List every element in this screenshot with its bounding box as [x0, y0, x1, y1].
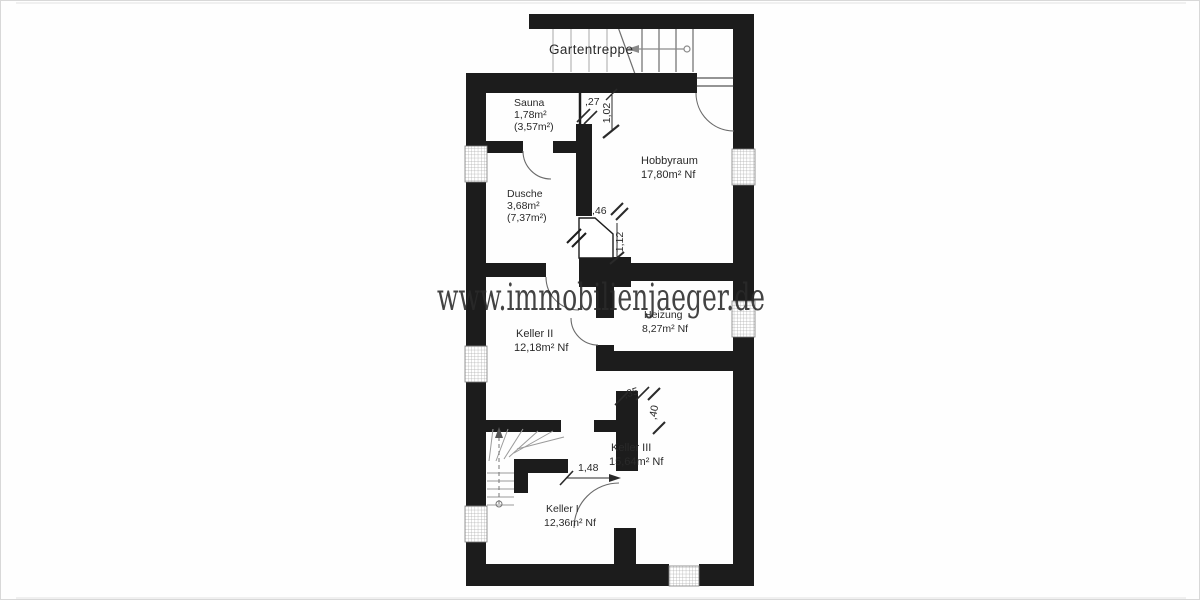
dim-112: 1,12	[614, 232, 626, 253]
window-left-keller2	[465, 346, 487, 382]
wall-sauna-2	[553, 141, 577, 153]
wall-keller2-bottom-1	[479, 420, 561, 432]
door-arc-entrance	[696, 93, 734, 131]
walkline-start-circle	[684, 46, 690, 52]
chimney-shaft	[567, 218, 613, 258]
floor-plan-svg: Gartentreppe	[1, 1, 1200, 600]
room-label-keller2: Keller II	[516, 328, 553, 340]
window-right-hobbyraum	[732, 149, 755, 185]
wall-keller2-bottom-2	[594, 420, 619, 432]
room-area2-sauna: (3,57m²)	[514, 121, 554, 133]
room-area-heizung: 8,27m² Nf	[642, 323, 688, 335]
wall-left-3	[466, 382, 486, 506]
room-label-dusche: Dusche	[507, 188, 543, 200]
wall-right-1	[733, 14, 754, 149]
wall-bottom-2	[699, 564, 754, 586]
room-area-keller2: 12,18m² Nf	[514, 342, 569, 354]
wall-top-main	[466, 73, 697, 93]
room-area2-dusche: (7,37m²)	[507, 212, 547, 224]
door-arc-sauna	[523, 151, 551, 179]
door-arc-heizung	[571, 318, 598, 345]
room-area-sauna: 1,78m²	[514, 109, 547, 121]
dim-40: ,40	[647, 404, 661, 421]
window-left-sauna	[465, 146, 487, 182]
dim-46: ,46	[592, 205, 607, 217]
garden-stairs: Gartentreppe	[549, 27, 693, 74]
floor-plan-page: Gartentreppe	[0, 0, 1200, 600]
garden-stairs-label: Gartentreppe	[549, 42, 633, 57]
room-area-keller1: 12,36m² Nf	[544, 517, 596, 529]
wall-keller-divider-bottom	[614, 528, 636, 568]
wall-left-1	[466, 73, 486, 146]
dim-27: ,27	[585, 96, 600, 108]
wall-sauna-1	[486, 141, 523, 153]
window-left-keller1	[465, 506, 487, 542]
dim-148: 1,48	[578, 462, 599, 474]
room-area-keller3: 15,64m² Nf	[609, 456, 664, 468]
wall-stair-L-vertical	[514, 459, 528, 493]
wall-stair-top	[529, 14, 753, 29]
wall-heizung-bottom	[596, 351, 754, 371]
wall-center-vertical	[576, 124, 592, 216]
room-area-hobbyraum: 17,80m² Nf	[641, 169, 696, 181]
room-label-keller1: Keller I	[546, 503, 579, 515]
window-bottom-keller3	[669, 566, 699, 586]
room-area-dusche: 3,68m²	[507, 200, 540, 212]
wall-right-3	[733, 337, 754, 586]
wall-left-2	[466, 182, 486, 346]
dim-102: 1,02	[601, 103, 613, 124]
wall-cross-left	[486, 263, 546, 277]
room-label-sauna: Sauna	[514, 97, 545, 109]
wall-bottom-1	[466, 564, 669, 586]
watermark-text: www.immobilienjaeger.de	[437, 276, 765, 319]
room-label-hobbyraum: Hobbyraum	[641, 155, 698, 167]
room-label-keller3: Keller III	[611, 442, 651, 454]
